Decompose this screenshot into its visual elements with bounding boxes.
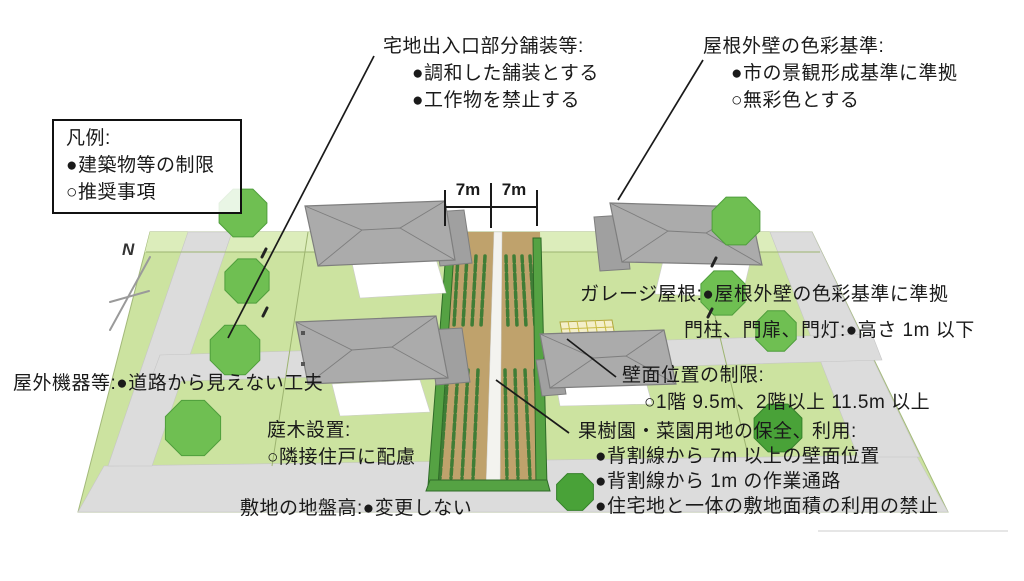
annotation-title: 庭木設置: — [267, 417, 415, 444]
house-patio — [352, 259, 446, 298]
house-roof — [305, 201, 455, 266]
legend-title: 凡例: — [66, 125, 238, 152]
dimension-label-left: 7m — [453, 180, 483, 200]
annotation-wall-position: 壁面位置の制限: ○1階 9.5m、2階以上 11.5m 以上 — [622, 362, 930, 416]
annotation-outdoor-equipment: 屋外機器等:●道路から見えない工夫 — [13, 370, 323, 397]
annotation-title: 果樹園・菜園用地の保全、利用: — [578, 419, 938, 444]
tree-icon — [165, 400, 220, 455]
legend-box: 凡例: ●建築物等の制限 ○推奨事項 — [52, 119, 242, 214]
site-regulation-diagram: 凡例: ●建築物等の制限 ○推奨事項 宅地出入口部分舗装等: ●調和した舗装とす… — [0, 0, 1024, 581]
dimension-label-right: 7m — [499, 180, 529, 200]
annotation-entrance-paving: 宅地出入口部分舗装等: ●調和した舗装とする ●工作物を禁止する — [383, 33, 599, 114]
north-label: N — [122, 240, 134, 260]
crop-row — [506, 256, 508, 326]
annotation-title: 屋根外壁の色彩基準: — [703, 33, 957, 60]
annotation-line: ○1階 9.5m、2階以上 11.5m 以上 — [622, 389, 930, 416]
annotation-ground-level: 敷地の地盤高:●変更しない — [240, 495, 472, 522]
legend-item: ○推奨事項 — [66, 179, 238, 206]
annotation-line: ○無彩色とする — [703, 87, 957, 114]
annotation-line: ○隣接住戸に配慮 — [267, 444, 415, 471]
annotation-garden-trees: 庭木設置: ○隣接住戸に配慮 — [267, 417, 415, 471]
annotation-line: ●背割線から 7m 以上の壁面位置 — [578, 444, 938, 469]
house-patio — [332, 380, 430, 416]
annotation-line: ●市の景観形成基準に準拠 — [703, 60, 957, 87]
tree-icon — [225, 259, 269, 303]
leader-roof-color — [618, 60, 703, 200]
annotation-roof-wall-color: 屋根外壁の色彩基準: ●市の景観形成基準に準拠 ○無彩色とする — [703, 33, 957, 114]
annotation-line: ●住宅地と一体の敷地面積の利用の禁止 — [578, 494, 938, 519]
annotation-garage-roof: ガレージ屋根:●屋根外壁の色彩基準に準拠 — [580, 281, 948, 308]
annotation-line: ●調和した舗装とする — [383, 60, 599, 87]
annotation-orchard: 果樹園・菜園用地の保全、利用: ●背割線から 7m 以上の壁面位置 ●背割線から… — [578, 419, 938, 519]
hedge-bottom — [426, 480, 550, 491]
annotation-gate: 門柱、門扉、門灯:●高さ 1m 以下 — [684, 317, 975, 344]
annotation-line: ●工作物を禁止する — [383, 87, 599, 114]
tree-icon — [210, 325, 260, 375]
tree-icon — [712, 197, 760, 245]
legend-item: ●建築物等の制限 — [66, 152, 238, 179]
annotation-title: 壁面位置の制限: — [622, 362, 930, 389]
annotation-title: 宅地出入口部分舗装等: — [383, 33, 599, 60]
annotation-line: ●背割線から 1m の作業通路 — [578, 469, 938, 494]
